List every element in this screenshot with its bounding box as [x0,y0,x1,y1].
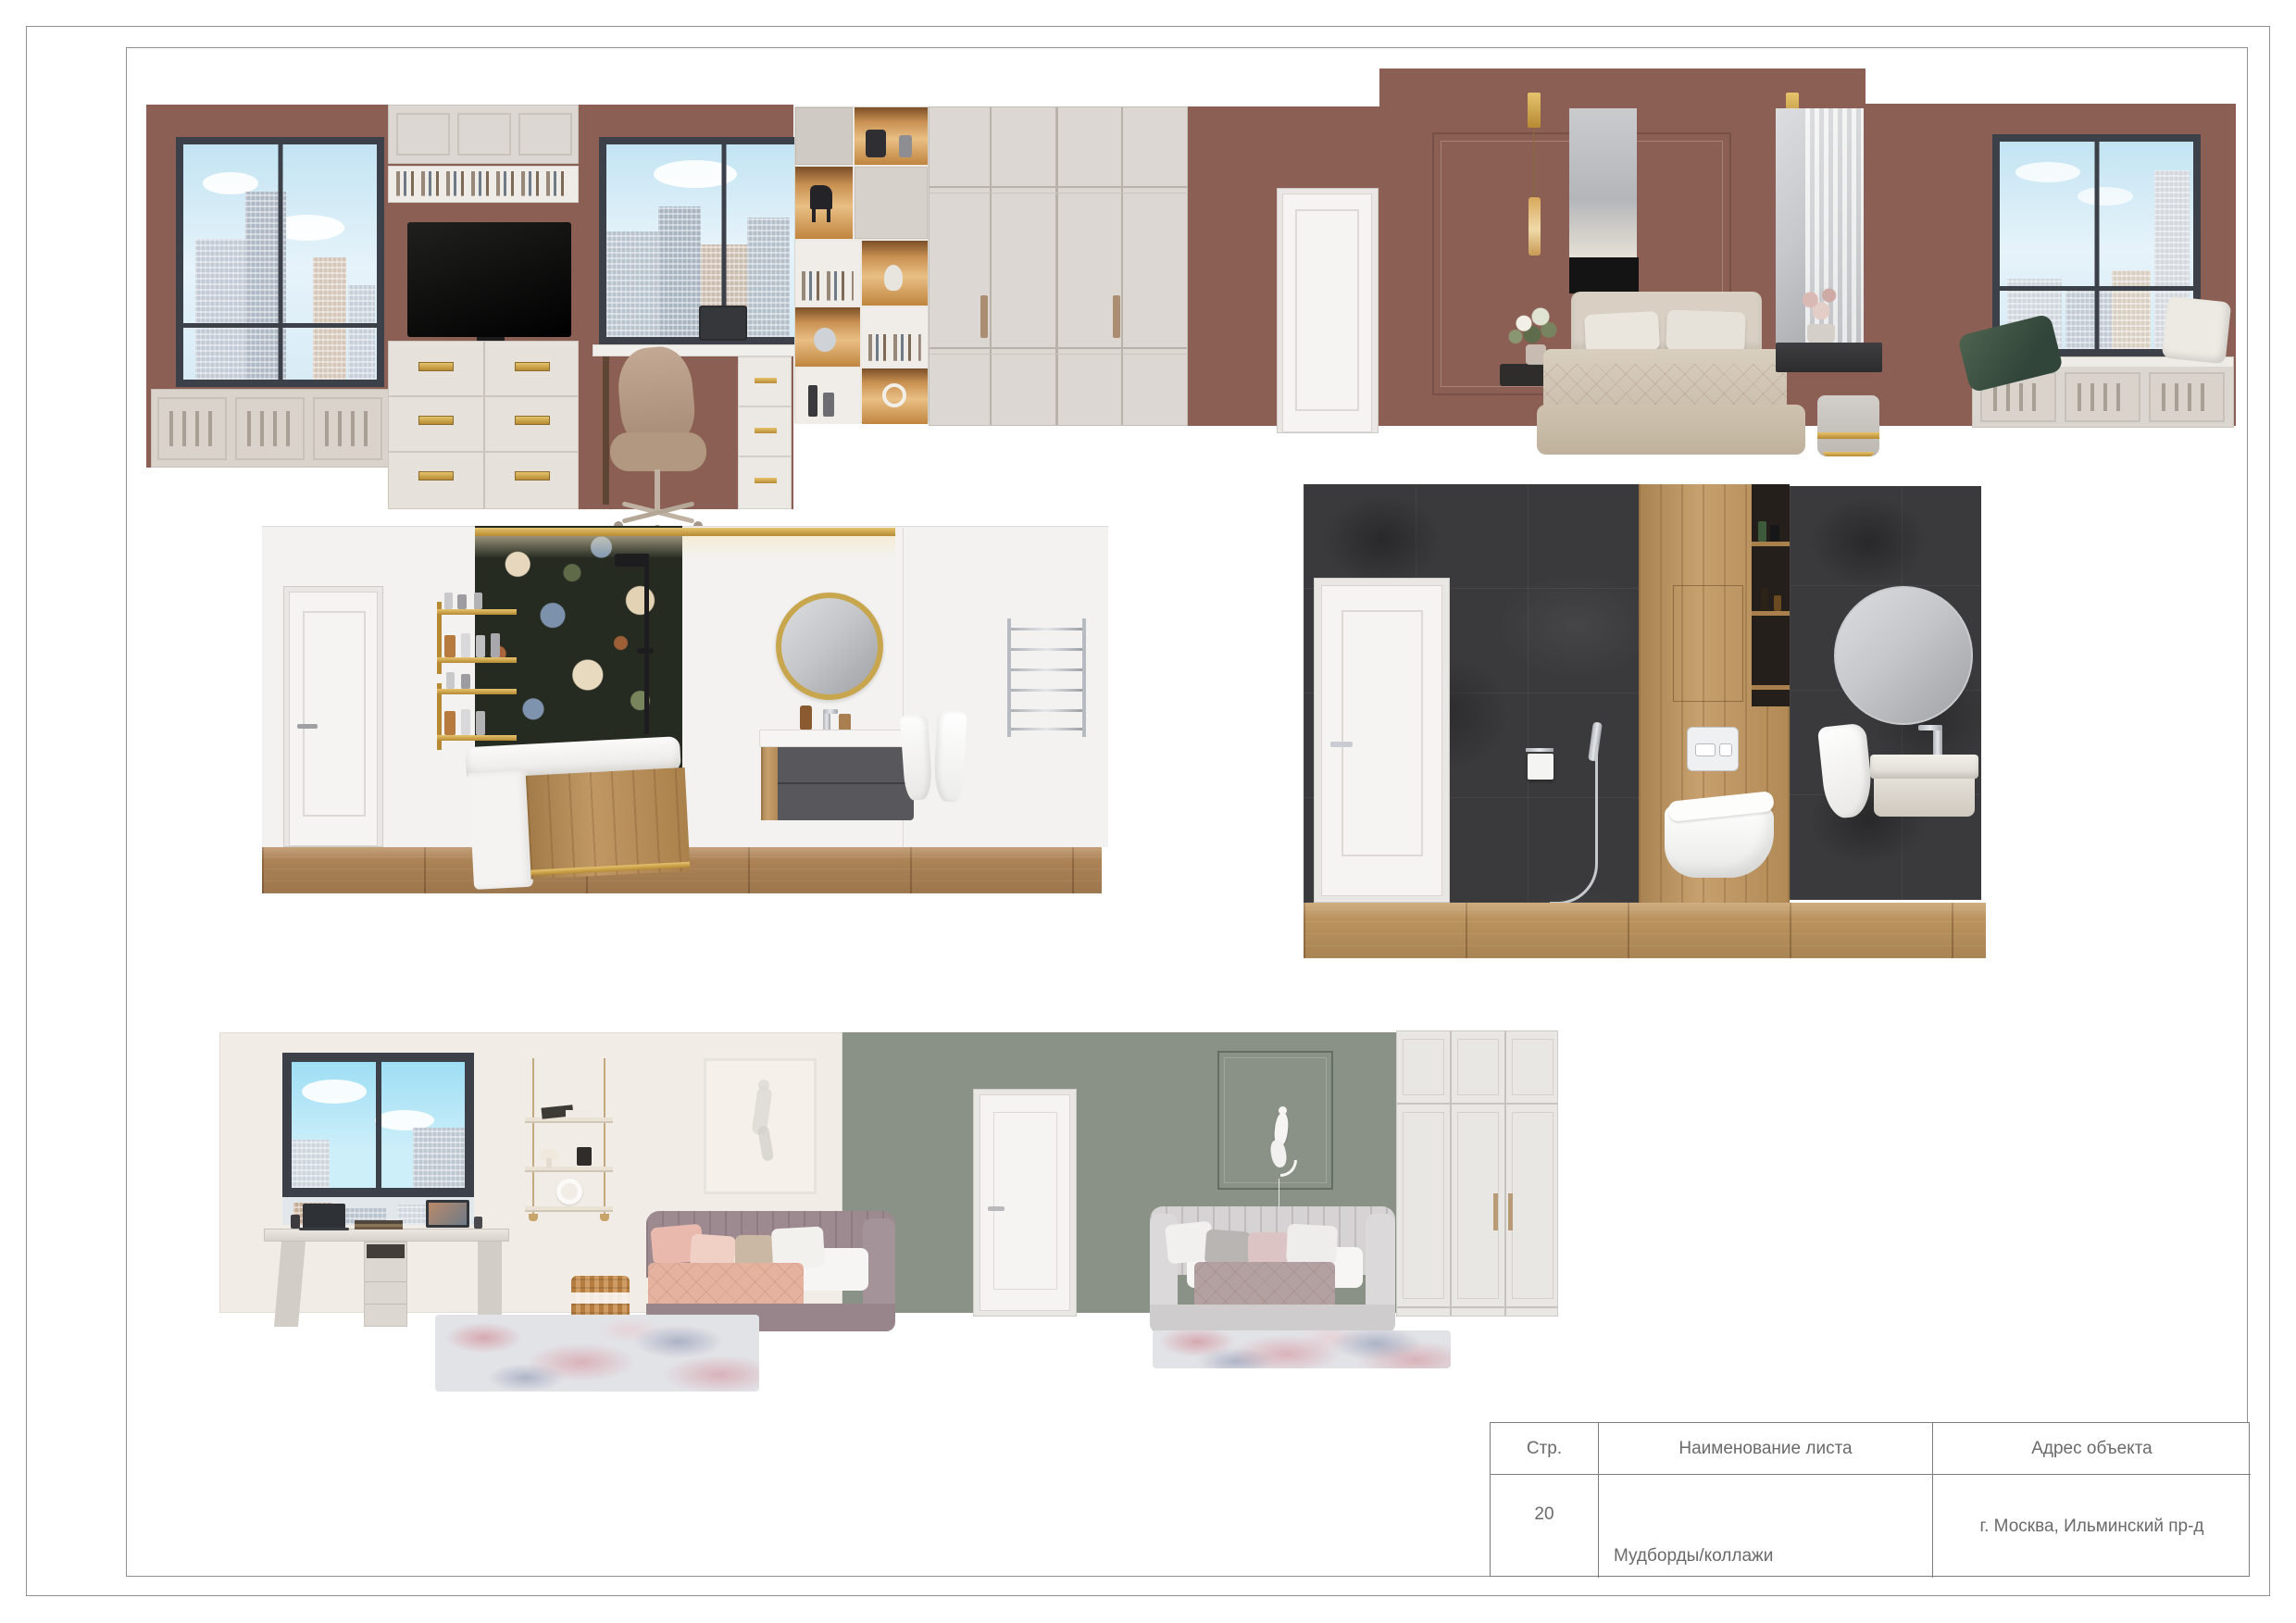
title-block-header-sheet-name: Наименование листа [1598,1423,1932,1474]
title-block-header-address: Адрес объекта [1932,1423,2251,1474]
desk-speaker [291,1215,300,1229]
kids-door [980,1094,1070,1311]
hanging-rope-shelf [525,1058,613,1222]
title-block-header-page: Стр. [1491,1423,1598,1474]
ring-sculpture [556,1179,582,1205]
wardrobe-handle [1508,1193,1513,1230]
kids-desk-drawers [364,1242,407,1327]
kids-desk-top [264,1229,509,1242]
kids-door-frame [973,1089,1077,1317]
title-block-address: г. Москва, Ильминский пр-д [1932,1474,2251,1578]
pillow [1286,1224,1338,1266]
pen-cup [474,1217,482,1229]
title-block: Стр. Наименование листа Адрес объекта 20… [1490,1422,2250,1577]
shelf-books [566,1110,592,1117]
kids-sofa-plum [646,1211,895,1331]
monkey-lamp [1266,1106,1295,1208]
city-building [413,1128,465,1188]
door-handle [988,1206,1004,1211]
art-frame [704,1058,817,1194]
shelf-speaker [577,1147,592,1166]
laptop [426,1200,469,1228]
sofa-blanket [1194,1262,1335,1310]
laptop [303,1204,345,1230]
city-building [292,1140,330,1188]
title-block-sheet-name: Мудборды/коллажи [1598,1474,1932,1578]
sheet: { "sheet": { "title_block": { "headers":… [0,0,2296,1623]
book-stack [355,1220,403,1230]
kids-window [282,1053,474,1197]
kids-room-moodboard [0,0,2296,1623]
kids-sofa-gray [1150,1206,1395,1333]
wardrobe-handle [1493,1193,1498,1230]
title-block-page-number: 20 [1491,1474,1598,1578]
pillow [1248,1232,1289,1264]
kids-wardrobe [1396,1030,1558,1317]
kids-rug-1 [435,1315,759,1392]
kids-rug-2 [1153,1330,1451,1368]
